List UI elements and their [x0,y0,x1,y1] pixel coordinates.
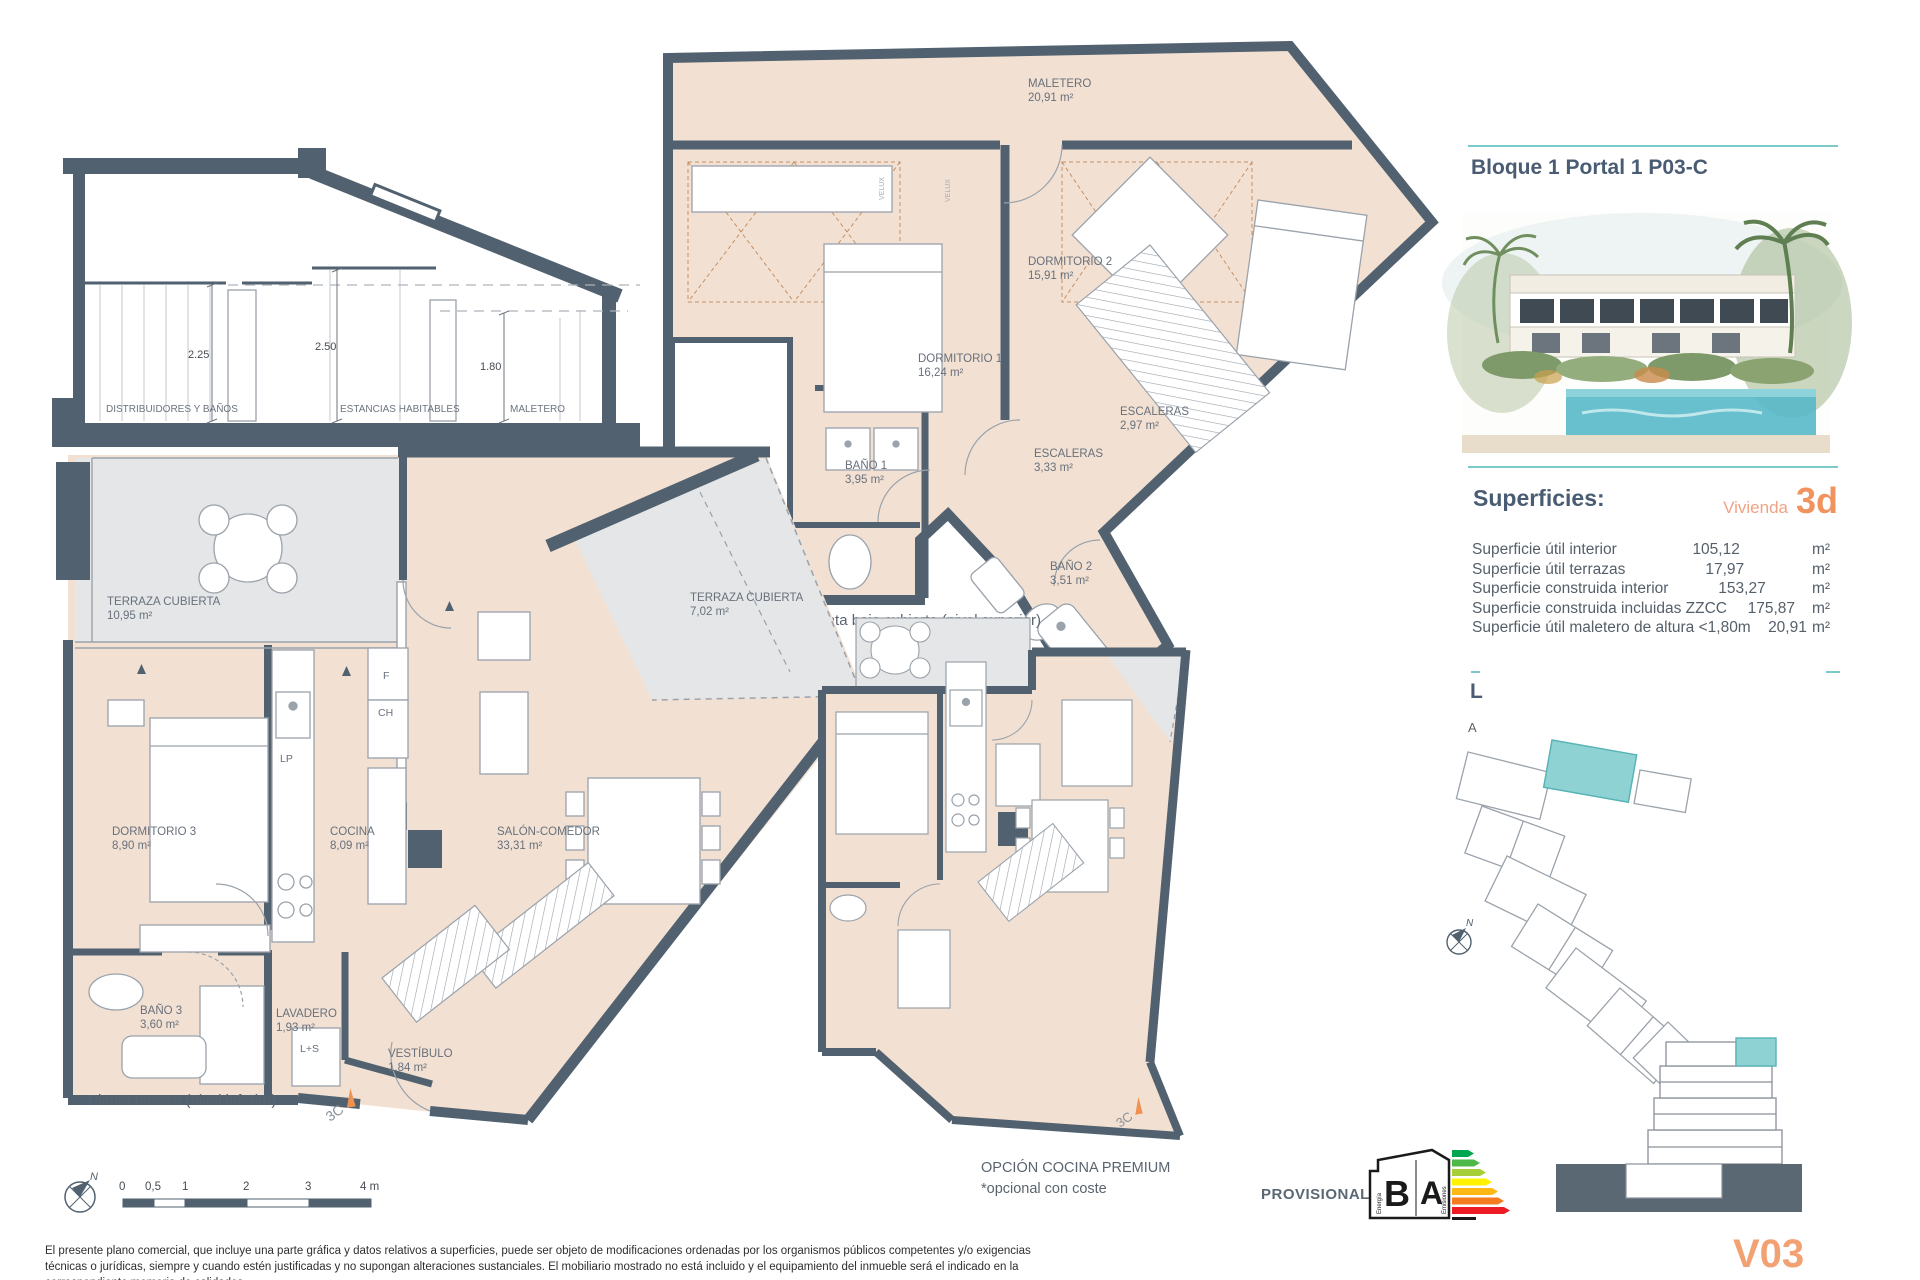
teal-dash-left [1471,671,1480,673]
teal-rule-top [1468,145,1838,147]
room-name: BAÑO 3 [140,1005,182,1019]
row-unit: m² [1807,599,1838,619]
section-dim-left: 2.25 [188,349,209,361]
room-name: DORMITORIO 3 [112,826,196,840]
scale-bar-segments [123,1199,371,1207]
scale-bar-ticks: 0 0,5 1 2 3 4 m [119,1181,379,1193]
premium-note: *opcional con coste [981,1181,1107,1197]
row-value: 17,97 [1688,560,1744,580]
clipped-heading-l: L [1470,680,1483,704]
room-label-salon: SALÓN-COMEDOR 33,31 m² [497,826,600,853]
building-render-image [1462,213,1830,453]
room-label-escaleras-a: ESCALERAS 3,33 m² [1034,448,1103,475]
vivienda-label: Vivienda [1723,498,1788,518]
plan-lower-caption: Planta tercera (nivel inferior) [88,1092,276,1109]
elevation-key [1550,1030,1812,1222]
room-name: TERRAZA CUBIERTA [107,596,220,610]
scale-tick: 2 [243,1181,249,1193]
compass-n-label: N [90,1171,98,1183]
room-name: SALÓN-COMEDOR [497,826,600,840]
row-label: Superficie construida incluidas ZZCC [1472,599,1727,619]
premium-caption: OPCIÓN COCINA PREMIUM [981,1160,1170,1176]
plan-lower-drawing: F CH LP L+S 3C [50,440,880,1140]
row-value: 20,91 [1751,618,1807,638]
row-label: Superficie útil maletero de altura <1,80… [1472,618,1751,638]
site-highlighted-unit [1544,740,1637,802]
room-name: ESCALERAS [1034,448,1103,462]
ls-label: L+S [300,1043,319,1055]
room-label-bano2: BAÑO 2 3,51 m² [1050,561,1092,588]
section-ceilings [85,268,436,283]
room-name: BAÑO 2 [1050,561,1092,575]
vivienda-tag: Vivienda 3d [1723,480,1838,522]
room-name: ESCALERAS [1120,406,1189,420]
section-hatching [100,270,580,421]
room-name: LAVADERO [276,1008,337,1022]
room-area: 1,84 m² [388,1062,453,1076]
scale-tick: 0 [119,1181,125,1193]
superficies-row: Superficie construida incluidas ZZCC 175… [1472,599,1838,619]
room-area: 10,95 m² [107,610,220,624]
scale-tick: 1 [182,1181,188,1193]
room-label-maletero: MALETERO 20,91 m² [1028,78,1091,105]
elevation-podium-notch [1626,1164,1722,1198]
scale-tick: 3 [305,1181,311,1193]
fridge-label: F [383,670,389,682]
room-label-terraza2: TERRAZA CUBIERTA 7,02 m² [690,592,803,619]
superficies-row: Superficie útil interior 105,12 m² [1472,540,1838,560]
room-area: 7,02 m² [690,606,803,620]
render-windows [1520,299,1788,323]
ch-label: CH [378,707,393,719]
section-zone-left: DISTRIBUIDORES Y BAÑOS [106,402,238,415]
site-key-plan: N [1440,725,1840,1070]
row-label: Superficie útil terrazas [1472,560,1625,580]
room-label-lavadero: LAVADERO 1,93 m² [276,1008,337,1035]
superficies-row: Superficie útil maletero de altura <1,80… [1472,618,1838,638]
scale-tick: 4 m [360,1181,379,1193]
scale-tick: 0,5 [145,1181,161,1193]
energy-letter-emisiones: A [1420,1175,1443,1211]
room-label-dormitorio2: DORMITORIO 2 15,91 m² [1028,256,1112,283]
room-label-cocina: COCINA 8,09 m² [330,826,375,853]
room-name: COCINA [330,826,375,840]
room-label-dormitorio3: DORMITORIO 3 8,90 m² [112,826,196,853]
premium-terrace-table [860,622,930,678]
room-name: MALETERO [1028,78,1091,92]
room-name: VESTÍBULO [388,1048,453,1062]
section-zone-right: MALETERO [510,404,565,415]
row-unit: m² [1807,618,1838,638]
energy-certificate-icon: B A Energía Emisiones [1356,1138,1531,1223]
plan-sheet: 2.25 2.50 1.80 DISTRIBUIDORES Y BAÑOS ES… [0,0,1920,1280]
footer-disclaimer: El presente plano comercial, que incluye… [45,1244,1060,1280]
room-area: 1,93 m² [276,1022,337,1036]
energy-scale-bars [1452,1150,1510,1220]
room-label-dormitorio1: DORMITORIO 1 16,24 m² [918,353,1002,380]
lp-label: LP [280,753,293,765]
section-schema-drawing: 2.25 2.50 1.80 DISTRIBUIDORES Y BAÑOS ES… [0,0,700,500]
provisional-label: PROVISIONAL [1261,1186,1370,1203]
room-area: 8,90 m² [112,840,196,854]
room-area: 16,24 m² [918,367,1002,381]
room-area: 15,91 m² [1028,270,1112,284]
vivienda-code: 3d [1796,480,1838,522]
room-area: 33,31 m² [497,840,600,854]
section-sloped-roof [312,172,620,296]
room-area: 8,09 m² [330,840,375,854]
render-deck [1462,435,1830,453]
room-label-vestibulo: VESTÍBULO 1,84 m² [388,1048,453,1075]
site-compass-icon: N [1447,918,1474,954]
plan-premium-drawing: 3C [805,605,1200,1150]
section-dim-mid: 2.50 [315,341,336,353]
energy-axis-emisiones: Emisiones [1442,1186,1448,1214]
terrace-parapet [56,462,90,580]
room-name: DORMITORIO 1 [918,353,1002,367]
room-area: 2,97 m² [1120,420,1189,434]
room-area: 3,51 m² [1050,575,1092,589]
room-area: 3,60 m² [140,1019,182,1033]
row-unit: m² [1807,540,1838,560]
room-label-bano3: BAÑO 3 3,60 m² [140,1005,182,1032]
compass-n-label: N [1466,918,1474,929]
energy-axis-consumo: Energía [1377,1192,1383,1214]
velux-label-1: VELUX [879,177,886,200]
room-name: TERRAZA CUBIERTA [690,592,803,606]
teal-dash-right [1826,671,1840,673]
row-value: 105,12 [1684,540,1740,560]
superficies-heading: Superficies: [1473,485,1605,512]
room-label-escaleras-b: ESCALERAS 2,97 m² [1120,406,1189,433]
row-unit: m² [1807,560,1838,580]
terrace-table [199,505,297,593]
section-dim-right: 1.80 [480,361,501,373]
room-label-terraza1: TERRAZA CUBIERTA 10,95 m² [107,596,220,623]
superficies-row: Superficie útil terrazas 17,97 m² [1472,560,1838,580]
scale-bar: N 0 0,5 1 2 3 4 m [40,1160,400,1230]
teal-rule-superficies [1468,466,1838,468]
room-name: DORMITORIO 2 [1028,256,1112,270]
version-tag: V03 [1733,1232,1804,1277]
row-value: 175,87 [1739,599,1795,619]
velux-label-2: VELUX [945,179,952,202]
row-label: Superficie construida interior [1472,579,1668,599]
compass-icon: N [65,1171,98,1212]
row-unit: m² [1807,579,1838,599]
page-title: Bloque 1 Portal 1 P03-C [1471,156,1708,180]
energy-letter-consumo: B [1384,1173,1410,1214]
superficies-row: Superficie construida interior 153,27 m² [1472,579,1838,599]
section-doors [228,290,456,421]
room-area: 3,33 m² [1034,462,1103,476]
superficies-table: Superficie útil interior 105,12 m² Super… [1472,540,1838,638]
kitchen-pier [408,830,442,868]
elevation-highlighted-unit [1736,1038,1776,1066]
row-value: 153,27 [1710,579,1766,599]
room-area: 20,91 m² [1028,92,1091,106]
row-label: Superficie útil interior [1472,540,1617,560]
section-zone-mid: ESTANCIAS HABITABLES [340,404,460,415]
